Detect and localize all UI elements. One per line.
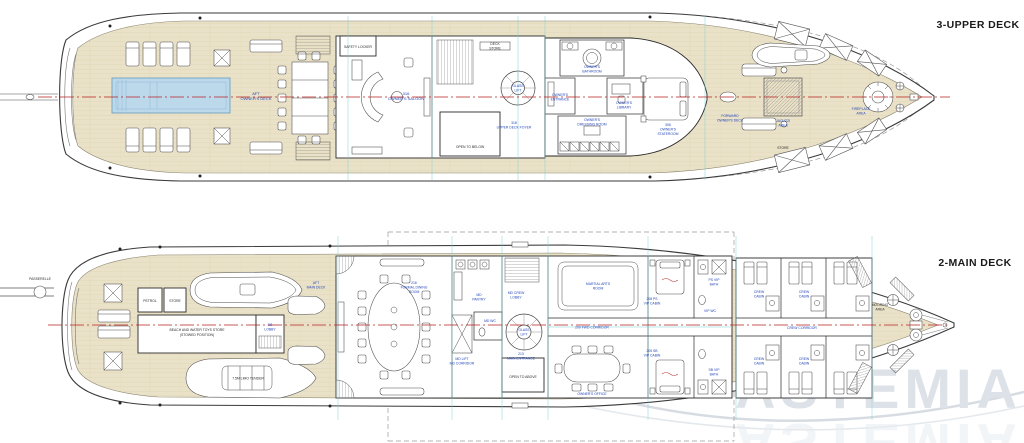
- garage-stairs: [259, 336, 281, 348]
- label-sb-vip-cabin: VIP CABIN: [644, 354, 661, 358]
- label-glass-lift-main: GLASS: [518, 328, 530, 332]
- label-fwd-owners-deck: OWNER'S DECK: [717, 119, 744, 123]
- label-sb-vip-bath: SB VIP: [709, 368, 721, 372]
- pool: [112, 78, 230, 113]
- label-owners-library: LIBRARY: [617, 106, 632, 110]
- label-glass-lift-upper: GLASS: [512, 84, 524, 88]
- label-martial-arts: MARTIAL ARTS: [586, 282, 611, 286]
- label-glass-lift-upper: LIFT: [515, 89, 522, 93]
- label-vip-wc: VIP WC: [704, 309, 717, 313]
- foyer-stairs: [437, 40, 473, 84]
- crew-stairs: [505, 258, 539, 282]
- label-owners-stateroom: STATEROOM: [658, 132, 679, 136]
- label-fwd-owners-deck: FORWARD: [721, 114, 739, 118]
- label-petrol: PETROL: [143, 299, 157, 303]
- label-crew-cabin: CREW: [799, 290, 810, 294]
- label-toy-store: BEACH AND WATER TOYS STORE: [169, 328, 225, 332]
- passerelle: [0, 286, 54, 298]
- md-lift-shaft: [452, 315, 472, 353]
- label-owners-library: OWNER'S: [616, 101, 633, 105]
- side-stairs: [296, 142, 330, 160]
- label-crew-corridor: CREW CORRIDOR: [787, 326, 817, 330]
- label-md-pantry: PANTRY: [472, 298, 486, 302]
- label-owners-entrance: OWNER'S: [552, 93, 569, 97]
- label-aft-main-deck: MAIN DECK: [307, 286, 327, 290]
- label-formal-dining: ROOM: [409, 290, 420, 294]
- label-owners-bathroom: BATHROOM: [582, 70, 602, 74]
- label-crew-cabin: CREW: [754, 290, 765, 294]
- label-owners-bathroom: OWNER'S: [584, 65, 601, 69]
- upper-deck-title: 3-UPPER DECK: [937, 19, 1020, 31]
- ps-vip-cabin-furniture: [650, 260, 690, 294]
- open-to-below-void: [440, 112, 500, 156]
- main-deck-title: 2-MAIN DECK: [938, 257, 1011, 269]
- label-open-to-below: OPEN TO BELOW: [456, 145, 485, 149]
- yacht-ga-drawing: ASTEMIA ASTEMIA: [0, 0, 1024, 443]
- wc-toilet: [479, 328, 485, 336]
- label-owners-stateroom: OWNER'S: [660, 128, 677, 132]
- label-deck-store: STORE: [489, 47, 501, 51]
- owners-bed: [641, 76, 688, 122]
- label-upper-foyer: 318: [511, 121, 517, 125]
- label-owners-saloon: OWNER'S SALOON: [388, 96, 425, 101]
- label-safety-locker: SAFETY LOCKER: [344, 45, 373, 49]
- label-md-pantry: MD: [476, 293, 482, 297]
- label-db-lobby: DB: [268, 323, 273, 327]
- boarding-door: [512, 403, 528, 408]
- label-fwd-corridor: 209 FWD CORRIDOR: [575, 326, 609, 330]
- label-crew-cabin: CABIN: [799, 362, 810, 366]
- label-jacuzzi: AREA: [778, 124, 788, 128]
- label-aft-owners-deck: OWNER'S DECK: [241, 96, 272, 101]
- label-store-upper: STORE: [777, 146, 789, 150]
- label-md-crew-lobby: MD CREW: [508, 291, 525, 295]
- tender-aft: [190, 272, 302, 308]
- side-stairs: [296, 36, 330, 54]
- label-fireplace: AREA: [856, 112, 866, 116]
- label-store: STORE: [169, 299, 181, 303]
- label-formal-dining: FORMAL DINING: [401, 286, 428, 290]
- label-crew-cabin: CABIN: [799, 295, 810, 299]
- label-md-lift: MD LIFT: [455, 357, 468, 361]
- label-toy-store: (STOWED POSITION): [180, 333, 214, 337]
- label-md-crew-lobby: LOBBY: [510, 296, 522, 300]
- label-mooring-area: MOORING: [872, 303, 889, 307]
- label-main-entrance: MAIN ENTRANCE: [507, 357, 536, 361]
- label-db-lobby: LOBBY: [264, 328, 276, 332]
- watermark-reflection: ASTEMIA: [735, 412, 1022, 443]
- boarding-door: [512, 242, 528, 247]
- label-upper-foyer: UPPER DECK FOYER: [497, 126, 532, 130]
- label-sb-vip-bath: BATH: [710, 373, 719, 377]
- label-ps-vip-cabin: VIP CABIN: [644, 302, 661, 306]
- label-crew-cabin: CREW: [754, 357, 765, 361]
- label-fireplace: FIREPLACE: [852, 107, 872, 111]
- label-formal-dining: 216: [411, 281, 417, 285]
- label-crew-cabin: CABIN: [754, 295, 765, 299]
- label-md-wc: MD WC: [484, 319, 496, 323]
- label-ps-vip-bath: BATH: [710, 283, 719, 287]
- label-aft-main-deck: AFT: [313, 281, 319, 285]
- boom-fitting: [26, 95, 34, 100]
- label-owners-office: OWNER'S OFFICE: [577, 392, 607, 396]
- label-crew-cabin: CABIN: [754, 362, 765, 366]
- deck-plans-svg: ASTEMIA ASTEMIA: [0, 0, 1024, 443]
- label-md-lift: MD CORRIDOR: [450, 362, 475, 366]
- label-main-entrance: 213: [518, 352, 524, 356]
- label-deck-store: DECK: [490, 42, 500, 46]
- label-limo-tender: 7.5M LIMO TENDER: [232, 377, 264, 381]
- label-crew-cabin: CREW: [799, 357, 810, 361]
- stored-tender: [752, 43, 830, 67]
- label-owners-entrance: ENTRANCE: [551, 98, 570, 102]
- label-glass-lift-main: LIFT: [521, 333, 528, 337]
- label-ps-vip-cabin: 208 PS: [646, 297, 658, 301]
- label-open-to-above: OPEN TO ABOVE: [509, 375, 537, 379]
- label-mooring-area: AREA: [875, 308, 885, 312]
- label-jacuzzi: JACUZZI: [776, 119, 790, 123]
- label-martial-arts: ROOM: [593, 287, 604, 291]
- label-owners-stateroom: 306: [665, 123, 671, 127]
- label-passerelle: PASSERELLE: [29, 277, 52, 281]
- label-sb-vip-cabin: 205 SB: [646, 349, 658, 353]
- label-owners-dressing: OWNER'S: [584, 118, 601, 122]
- upper-deck-plan: SAFETY LOCKER AFT OWNER'S DECK 316 OWNER…: [0, 13, 1020, 181]
- label-owners-dressing: DRESSING ROOM: [577, 123, 606, 127]
- label-ps-vip-bath: PS VIP: [709, 278, 721, 282]
- sb-vip-cabin-furniture: [650, 360, 690, 394]
